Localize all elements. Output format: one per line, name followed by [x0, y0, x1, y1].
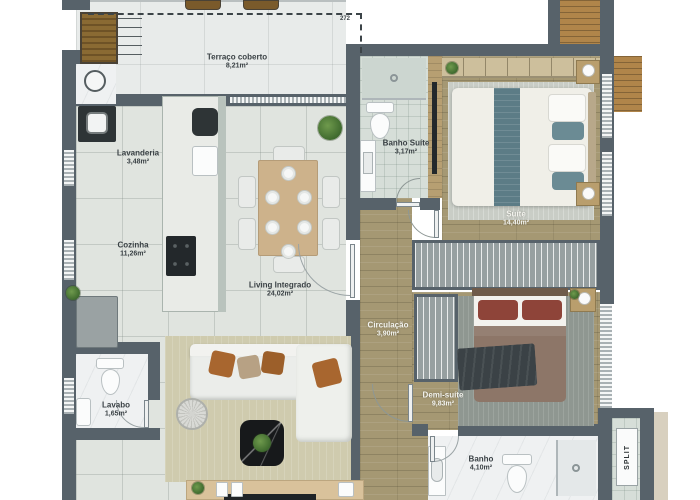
dining-chair — [322, 176, 340, 208]
bed-runner-teal — [494, 88, 520, 206]
room-label-suite: Suíte 14,40m² — [503, 210, 529, 229]
wall-segment — [598, 408, 654, 418]
door-leaf-suite — [434, 210, 439, 238]
room-label-living: Living Integrado 24,02m² — [249, 281, 311, 300]
room-label-lavanderia: Lavanderia 3,48m² — [117, 149, 159, 168]
room-label-circulacao: Circulação 3,90m² — [368, 321, 409, 340]
wall-segment — [412, 424, 428, 436]
room-label-terraco: Terraço coberto 8,21m² — [207, 53, 267, 72]
room-area: 24,02m² — [249, 291, 311, 300]
closet-suite — [412, 240, 600, 290]
door-leaf-living — [350, 244, 355, 298]
floor-plan: 272 — [0, 0, 700, 500]
door-leaf-banho-suite — [396, 202, 420, 207]
suite-tv — [432, 82, 437, 174]
stool — [243, 0, 279, 10]
door-leaf-lavabo — [144, 400, 149, 428]
laundry-sink — [192, 108, 218, 136]
room-name: Suíte — [506, 210, 526, 219]
sink-terraco — [84, 70, 106, 92]
wall-segment — [62, 0, 90, 10]
bed-pillow-maroon — [522, 300, 562, 320]
wall-segment — [62, 428, 160, 440]
wall-segment — [346, 106, 360, 240]
room-name: Banho — [469, 455, 494, 464]
place-setting — [281, 166, 296, 181]
stool — [185, 0, 221, 10]
sofa-pillow-orange — [208, 350, 236, 378]
toilet-tank — [96, 358, 124, 369]
dimension-272: 272 — [340, 16, 350, 22]
bed-pillow-white — [548, 94, 586, 122]
kitchen-island-edge — [218, 96, 226, 312]
grill-skewers — [118, 18, 142, 58]
window-lavabo — [64, 378, 74, 414]
wall-segment — [346, 44, 614, 56]
room-name: Demi-suíte — [423, 391, 464, 400]
shower-drain — [572, 464, 580, 472]
split-unit: SPLIT — [616, 428, 638, 486]
place-setting — [265, 190, 280, 205]
door-leaf-demi-suite — [408, 384, 413, 422]
picture-frame — [231, 482, 243, 497]
projection-dashed-line-vertical — [360, 13, 362, 53]
lamp-icon — [582, 187, 595, 200]
headboard-demi — [472, 288, 568, 296]
ledge-right-strip — [654, 412, 668, 500]
lamp-icon — [578, 292, 591, 305]
wall-segment — [148, 354, 160, 400]
window-suite — [602, 152, 612, 216]
sofa-pillow-orange — [261, 351, 286, 376]
room-label-demi-suite: Demi-suíte 9,83m² — [423, 391, 464, 410]
plant-icon — [318, 116, 342, 140]
bed-pillow-maroon — [478, 300, 518, 320]
place-setting — [297, 190, 312, 205]
picture-frame — [216, 482, 228, 497]
bed-pillow-teal — [552, 122, 584, 140]
window-lavanderia — [64, 150, 74, 186]
wall-segment — [600, 0, 614, 44]
door-leaf-banho — [430, 436, 435, 462]
wall-segment — [346, 198, 396, 210]
place-setting — [297, 220, 312, 235]
room-label-lavabo: Lavabo 1,65m² — [102, 401, 130, 420]
bed-pillow-white — [548, 144, 586, 172]
fridge — [76, 296, 118, 348]
room-name: Cozinha — [117, 241, 148, 250]
room-label-banho: Banho 4,10m² — [469, 455, 494, 474]
kitchen-sink — [192, 146, 218, 176]
washing-machine-door — [86, 112, 108, 134]
plant-icon — [253, 434, 271, 452]
toilet-tank — [366, 102, 394, 113]
window-suite — [602, 74, 612, 138]
lamp-icon — [582, 64, 595, 77]
room-area: 3,48m² — [117, 159, 159, 168]
window-terrace — [230, 97, 346, 103]
room-label-cozinha: Cozinha 11,26m² — [117, 241, 148, 260]
room-name: Lavanderia — [117, 149, 159, 158]
room-area: 9,83m² — [423, 401, 464, 410]
door-arc-suite — [408, 210, 436, 238]
console-basket — [338, 482, 354, 497]
plant-icon — [446, 62, 458, 74]
deck-top-right — [560, 0, 600, 44]
wall-segment — [600, 240, 614, 304]
sofa-pillow-beige — [236, 354, 261, 379]
room-area: 3,90m² — [368, 331, 409, 340]
closet-demi-suite — [414, 294, 458, 382]
dining-chair — [238, 218, 256, 250]
room-name: Banho Suíte — [383, 139, 430, 148]
plant-icon — [66, 286, 80, 300]
wall-segment — [640, 412, 654, 500]
room-area: 4,10m² — [469, 465, 494, 474]
ledge-top-right — [614, 56, 642, 112]
projection-dashed-line — [88, 13, 362, 15]
grill — [80, 12, 118, 64]
pouf-basket — [176, 398, 208, 430]
toilet-tank — [502, 454, 532, 465]
place-setting — [281, 244, 296, 259]
room-name: Terraço coberto — [207, 53, 267, 62]
room-area: 14,40m² — [503, 220, 529, 229]
cooktop — [166, 236, 196, 276]
room-name: Living Integrado — [249, 281, 311, 290]
place-setting — [265, 220, 280, 235]
wall-segment — [598, 408, 612, 500]
window-cozinha — [64, 240, 74, 280]
sofa-chaise — [296, 344, 352, 442]
wall-segment — [548, 0, 560, 44]
room-name: Lavabo — [102, 401, 130, 410]
room-area: 3,17m² — [383, 149, 430, 158]
lavabo-sink — [76, 398, 91, 426]
bed-demi-throw — [457, 343, 538, 390]
wall-segment — [420, 198, 440, 210]
room-area: 1,65m² — [102, 411, 130, 420]
vanity-sink — [363, 152, 373, 174]
dining-chair — [238, 176, 256, 208]
plant-icon — [570, 290, 579, 299]
room-label-banho-suite: Banho Suíte 3,17m² — [383, 139, 430, 158]
shower-drain — [390, 74, 398, 82]
plant-icon — [192, 482, 204, 494]
window-louver-demi — [600, 304, 612, 408]
room-name: Circulação — [368, 321, 409, 330]
floor-hallway — [360, 430, 428, 500]
room-area: 11,26m² — [117, 251, 148, 260]
split-label: SPLIT — [624, 445, 631, 470]
room-area: 8,21m² — [207, 63, 267, 72]
